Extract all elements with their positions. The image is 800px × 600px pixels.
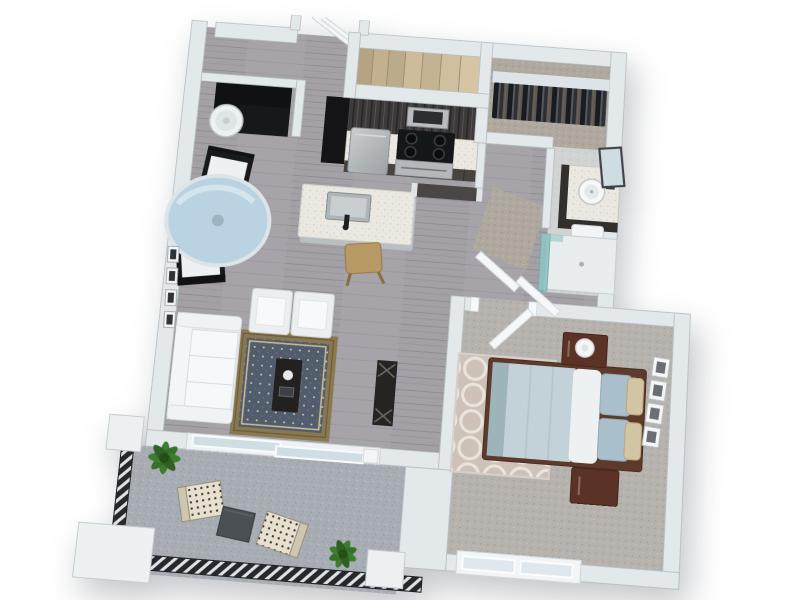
coffee-table — [271, 358, 302, 413]
patio-chair-left — [177, 481, 225, 522]
door-alcove-stub-left — [290, 15, 301, 30]
pillar-southwest — [72, 522, 154, 583]
glass-shower — [538, 234, 617, 297]
bathroom-mirror — [599, 148, 624, 188]
kitchen-island — [297, 184, 417, 251]
nightstand-south — [570, 467, 619, 506]
bed — [482, 358, 646, 472]
nightstand-north — [562, 332, 608, 368]
balcony-bedroom-wall — [398, 467, 453, 571]
plan-perspective-wrapper — [68, 3, 734, 600]
refrigerator — [347, 127, 390, 175]
armchair-right — [291, 291, 335, 338]
range-cooktop — [395, 129, 455, 179]
walk-in-closet — [490, 71, 610, 127]
sheet-fold — [568, 368, 602, 464]
pillow-tan-south — [624, 422, 642, 460]
floor-plan-render — [0, 0, 800, 600]
armchair-left — [249, 288, 293, 335]
bedroom-door-jamb-left — [470, 297, 479, 311]
floor-plan-svg — [68, 3, 734, 600]
pillow-tan-north — [626, 378, 644, 416]
pillar-southeast — [365, 550, 405, 589]
sofa — [167, 312, 242, 424]
duvet — [503, 363, 576, 462]
microwave-window — [413, 110, 443, 125]
pillar-northwest — [106, 414, 144, 452]
black-shelving-lower — [237, 105, 291, 137]
